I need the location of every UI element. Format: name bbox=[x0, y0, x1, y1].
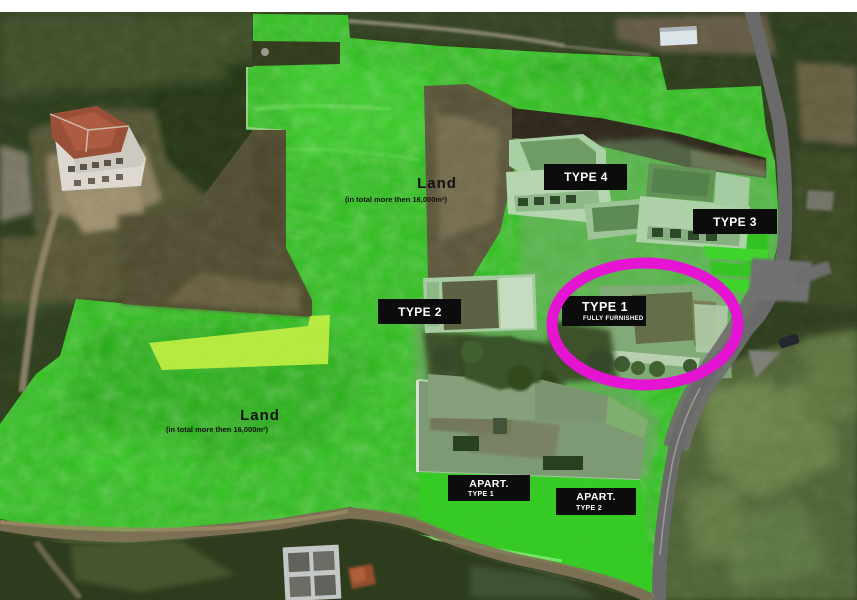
svg-text:(in total more then 16,000m²): (in total more then 16,000m²) bbox=[166, 425, 269, 434]
svg-text:TYPE 3: TYPE 3 bbox=[713, 215, 757, 229]
svg-text:APART.: APART. bbox=[576, 491, 616, 503]
svg-text:TYPE 4: TYPE 4 bbox=[564, 170, 608, 184]
svg-text:Land: Land bbox=[417, 175, 457, 192]
svg-text:APART.: APART. bbox=[469, 478, 509, 490]
svg-text:TYPE 1: TYPE 1 bbox=[582, 300, 628, 314]
svg-text:(in total more then 16,000m²): (in total more then 16,000m²) bbox=[345, 195, 448, 204]
svg-text:FULLY FURNISHED: FULLY FURNISHED bbox=[583, 316, 644, 322]
svg-text:TYPE 2: TYPE 2 bbox=[398, 305, 442, 319]
svg-text:TYPE 2: TYPE 2 bbox=[576, 505, 602, 512]
svg-text:TYPE 1: TYPE 1 bbox=[468, 491, 494, 498]
svg-text:Land: Land bbox=[240, 407, 280, 424]
